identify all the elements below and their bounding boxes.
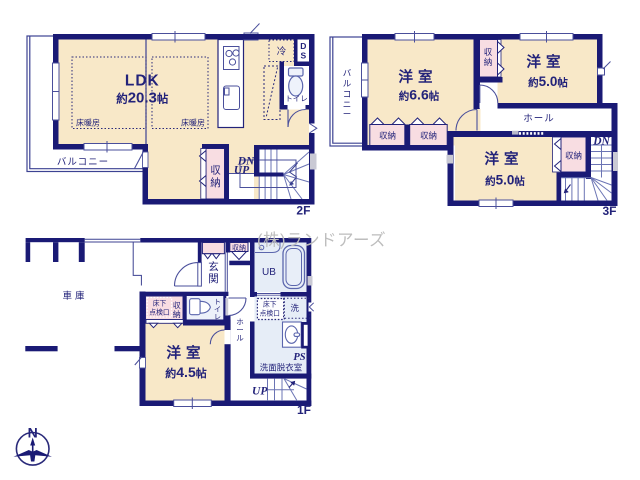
svg-text:車庫: 車庫 [62, 290, 87, 302]
svg-text:洋室: 洋室 [527, 53, 566, 71]
svg-text:イ: イ [214, 307, 221, 314]
svg-text:納: 納 [210, 176, 221, 189]
svg-text:冷: 冷 [277, 46, 287, 58]
svg-text:D: D [300, 41, 306, 51]
svg-text:床下: 床下 [153, 298, 167, 307]
svg-text:点検口: 点検口 [149, 307, 169, 316]
svg-text:(株)ランドアーズ: (株)ランドアーズ [257, 231, 386, 250]
svg-text:洋室: 洋室 [399, 68, 438, 86]
svg-text:バルコニー: バルコニー [57, 157, 109, 168]
svg-text:トイレ: トイレ [285, 94, 308, 103]
svg-text:洋室: 洋室 [485, 150, 524, 168]
svg-text:収: 収 [210, 165, 221, 177]
svg-text:ー: ー [343, 109, 352, 119]
svg-text:UB: UB [262, 267, 276, 278]
svg-text:PS: PS [293, 352, 305, 363]
svg-text:ル: ル [236, 334, 244, 343]
svg-text:点検口: 点検口 [260, 308, 280, 317]
svg-text:ト: ト [214, 299, 221, 306]
svg-text:2F: 2F [296, 203, 310, 217]
svg-text:ニ: ニ [343, 100, 352, 110]
svg-text:床暖房: 床暖房 [76, 118, 100, 128]
svg-text:納: 納 [484, 57, 493, 67]
svg-text:関: 関 [208, 273, 219, 285]
svg-text:DN: DN [592, 136, 610, 148]
svg-text:洗: 洗 [291, 303, 300, 313]
svg-text:レ: レ [214, 314, 221, 321]
svg-text:コ: コ [343, 89, 352, 99]
svg-text:UP: UP [234, 165, 250, 177]
svg-text:収: 収 [484, 47, 493, 57]
svg-text:床暖房: 床暖房 [181, 118, 205, 128]
svg-text:収納: 収納 [565, 151, 582, 161]
svg-text:1F: 1F [297, 403, 311, 417]
svg-text:3F: 3F [602, 204, 616, 218]
svg-text:収納: 収納 [379, 131, 396, 141]
svg-text:納: 納 [173, 309, 181, 319]
svg-text:洋室: 洋室 [167, 344, 206, 362]
svg-text:約5.0帖: 約5.0帖 [485, 173, 525, 188]
svg-text:玄: 玄 [208, 260, 219, 273]
svg-text:S: S [300, 51, 306, 61]
svg-text:LDK: LDK [125, 73, 160, 90]
svg-text:床下: 床下 [263, 299, 277, 308]
svg-text:ル: ル [343, 79, 352, 89]
svg-text:洗面脱衣室: 洗面脱衣室 [260, 363, 303, 373]
svg-text:約5.0帖: 約5.0帖 [528, 74, 568, 89]
svg-text:バ: バ [343, 68, 352, 78]
svg-text:UP: UP [252, 386, 268, 398]
svg-text:収納: 収納 [232, 243, 246, 252]
svg-text:ホール: ホール [523, 114, 555, 125]
svg-text:収納: 収納 [420, 131, 437, 141]
svg-text:収: 収 [173, 300, 181, 310]
